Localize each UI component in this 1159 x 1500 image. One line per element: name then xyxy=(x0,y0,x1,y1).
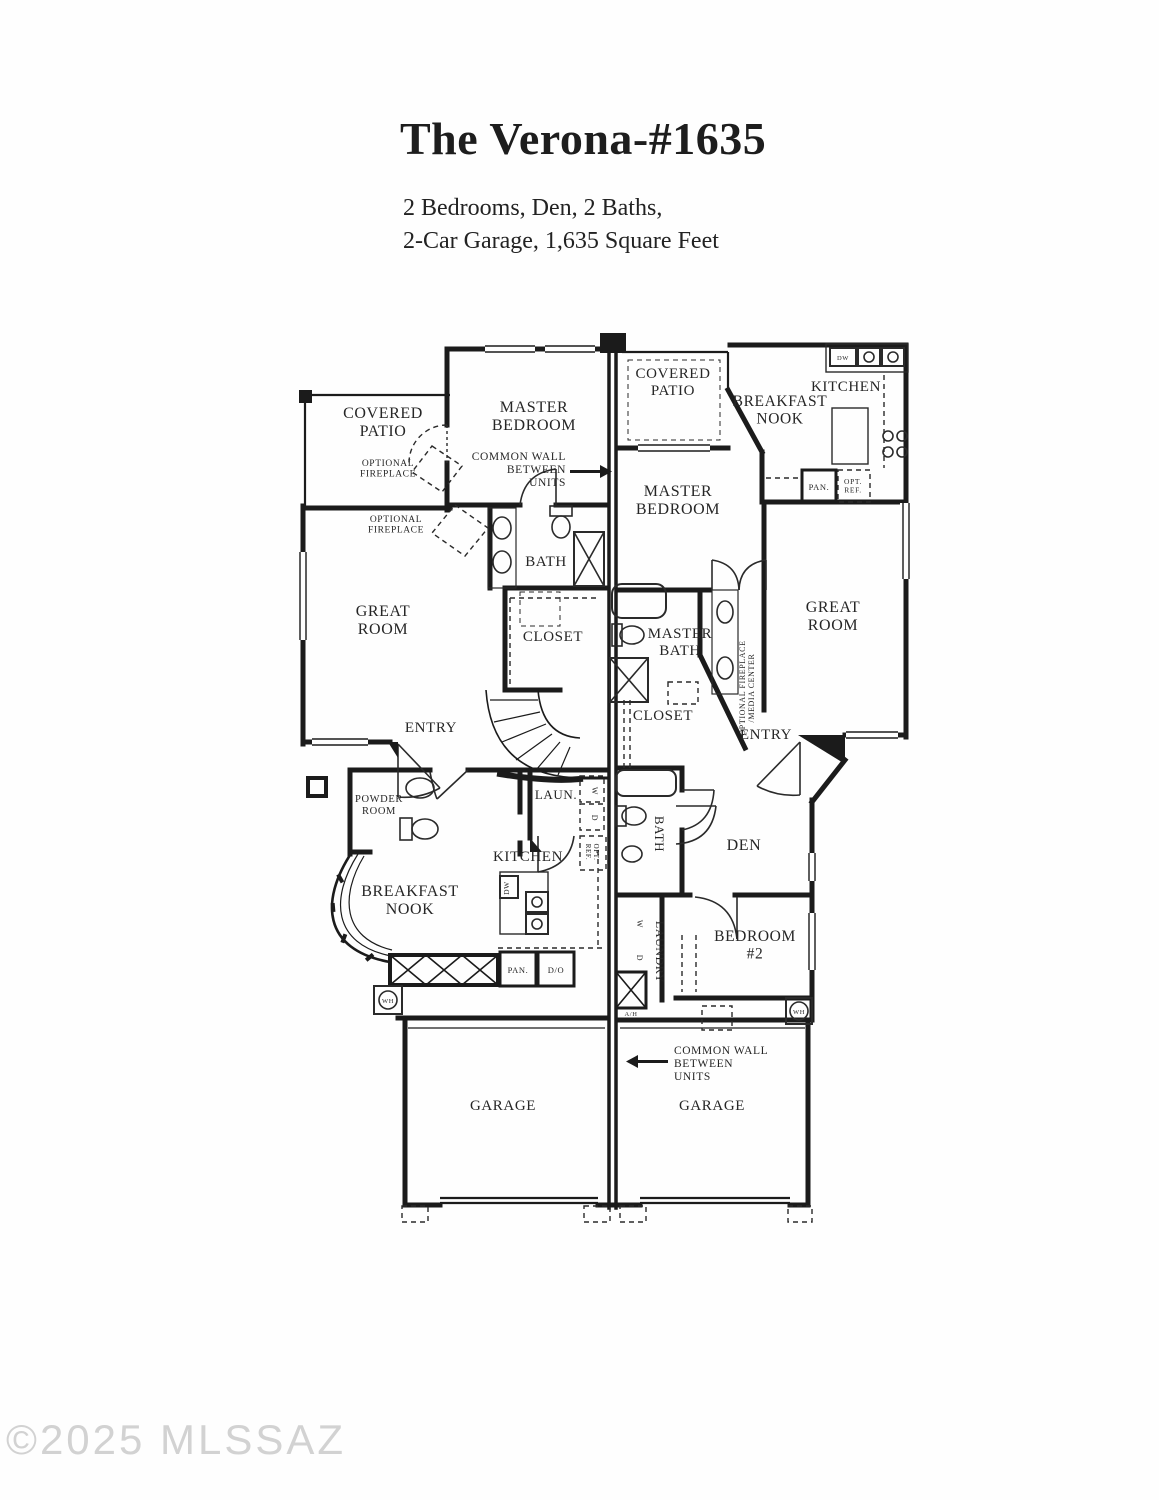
label-right-master-bedroom: MASTERBEDROOM xyxy=(636,483,720,518)
label-left-opt-ref: OPT.REF. xyxy=(584,844,600,861)
label-left-dw: DW xyxy=(502,881,511,895)
label-left-closet: CLOSET xyxy=(523,629,583,645)
label-left-kitchen: KITCHEN xyxy=(493,849,563,865)
label-right-den: DEN xyxy=(727,837,762,854)
label-left-pan: PAN. xyxy=(508,965,529,975)
label-left-optional-fireplace-lower: OPTIONALFIREPLACE xyxy=(368,515,424,536)
label-left-covered-patio: COVEREDPATIO xyxy=(343,405,423,440)
label-left-entry: ENTRY xyxy=(405,720,457,736)
label-right-great-room: GREATROOM xyxy=(806,599,861,634)
label-left-powder-room: POWDERROOM xyxy=(355,794,403,817)
label-left-optional-fireplace-upper: OPTIONALFIREPLACE xyxy=(360,459,416,480)
label-right-bedroom2: BEDROOM#2 xyxy=(714,928,796,962)
label-left-master-bedroom: MASTERBEDROOM xyxy=(492,399,576,434)
label-right-dryer: D xyxy=(635,955,644,961)
label-left-dryer: D xyxy=(590,815,599,821)
label-right-covered-patio: COVEREDPATIO xyxy=(635,366,710,399)
label-left-bath: BATH xyxy=(525,554,567,570)
label-left-garage: GARAGE xyxy=(470,1098,536,1114)
label-left-great-room: GREATROOM xyxy=(356,603,411,638)
label-right-entry: ENTRY xyxy=(740,727,792,743)
label-right-laundry: LAUNDRY xyxy=(653,921,667,983)
label-right-garage: GARAGE xyxy=(679,1098,745,1114)
label-left-breakfast-nook: BREAKFASTNOOK xyxy=(361,883,459,918)
label-right-opt-ref: OPT.REF. xyxy=(844,477,862,494)
label-common-wall-top: COMMON WALLBETWEENUNITS xyxy=(472,451,566,489)
label-right-opt-fireplace-media: OPTIONAL FIREPLACE/MEDIA CENTER xyxy=(738,640,756,735)
label-common-wall-bottom: COMMON WALLBETWEENUNITS xyxy=(674,1045,768,1083)
label-left-washer: W xyxy=(590,787,599,795)
label-right-closet: CLOSET xyxy=(633,708,693,724)
label-left-wh: WH xyxy=(382,998,394,1005)
label-left-laundry: LAUN. xyxy=(535,787,577,802)
label-right-ah: A/H xyxy=(625,1011,638,1018)
label-right-dw: DW xyxy=(837,355,849,362)
label-right-pan: PAN. xyxy=(809,482,830,492)
label-right-wh: WH xyxy=(793,1009,805,1016)
mls-watermark: ©2025 MLSSAZ xyxy=(6,1416,346,1464)
label-right-bath: BATH xyxy=(652,816,667,852)
floorplan-drawing: COVEREDPATIO OPTIONALFIREPLACE OPTIONALF… xyxy=(0,0,1159,1500)
label-right-washer: W xyxy=(635,920,644,928)
label-left-do: D/O xyxy=(548,965,564,975)
label-right-kitchen: KITCHEN xyxy=(811,379,881,395)
label-right-master-bath: MASTERBATH xyxy=(648,626,712,659)
floorplan-page: The Verona-#1635 2 Bedrooms, Den, 2 Bath… xyxy=(0,0,1159,1500)
